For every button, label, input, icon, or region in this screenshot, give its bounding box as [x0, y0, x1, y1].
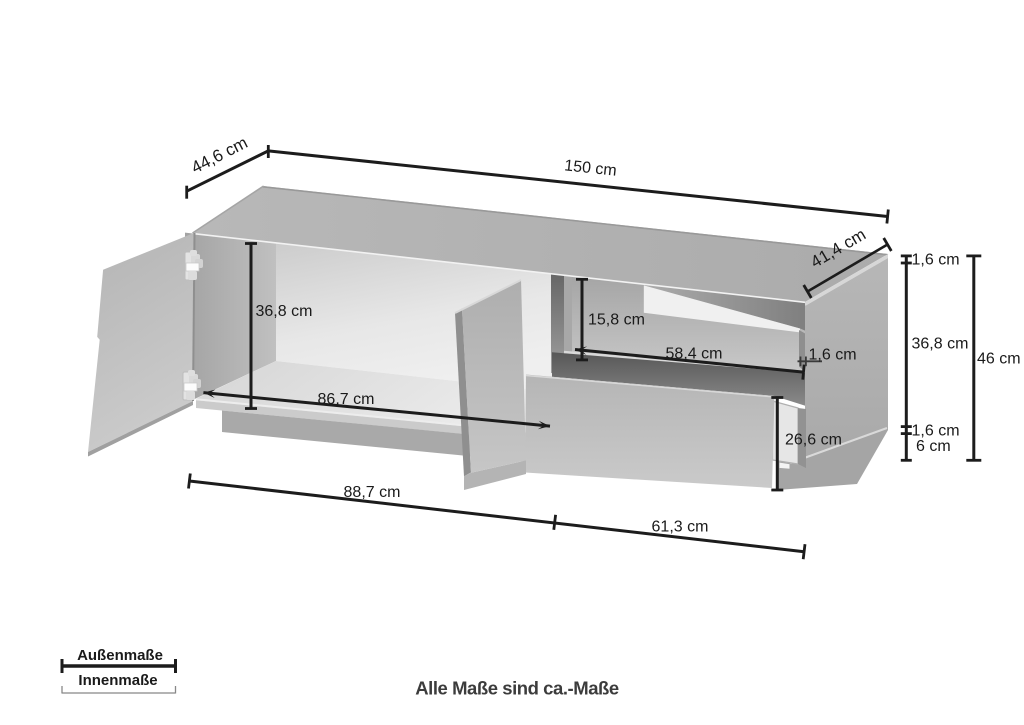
- svg-text:46 cm: 46 cm: [977, 351, 1021, 368]
- svg-text:36,8 cm: 36,8 cm: [256, 303, 313, 320]
- svg-text:Außenmaße: Außenmaße: [77, 647, 163, 664]
- svg-text:26,6 cm: 26,6 cm: [785, 432, 842, 449]
- svg-text:Innenmaße: Innenmaße: [78, 672, 157, 689]
- svg-text:1,6 cm: 1,6 cm: [912, 252, 960, 269]
- svg-text:86,7 cm: 86,7 cm: [318, 391, 375, 408]
- svg-text:36,8 cm: 36,8 cm: [912, 336, 969, 353]
- svg-text:58,4 cm: 58,4 cm: [666, 346, 723, 363]
- svg-text:Alle Maße sind ca.-Maße: Alle Maße sind ca.-Maße: [415, 678, 619, 699]
- svg-text:61,3 cm: 61,3 cm: [652, 519, 709, 536]
- svg-text:6 cm: 6 cm: [916, 438, 951, 455]
- svg-text:15,8 cm: 15,8 cm: [588, 312, 645, 329]
- svg-text:1,6 cm: 1,6 cm: [809, 347, 857, 364]
- svg-text:88,7 cm: 88,7 cm: [344, 484, 401, 501]
- svg-text:1,6 cm: 1,6 cm: [912, 423, 960, 440]
